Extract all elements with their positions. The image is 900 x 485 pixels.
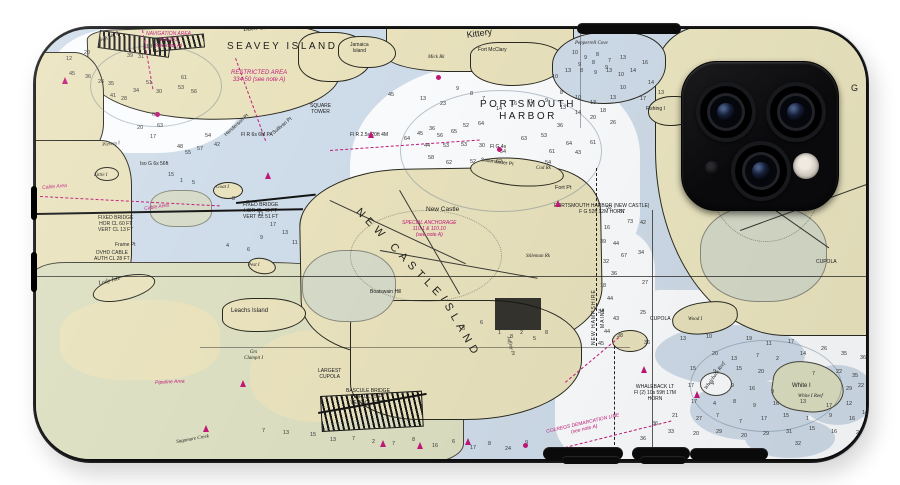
volume-button-upper xyxy=(31,186,37,220)
buoy-mark-icon xyxy=(465,438,471,445)
volume-button-lower xyxy=(31,252,37,292)
camera-lens-top-left xyxy=(696,82,756,142)
camera-module xyxy=(681,61,839,211)
buoy-mark-icon xyxy=(265,172,271,179)
lens-glass xyxy=(752,162,770,180)
buoy-mark-icon xyxy=(380,440,386,447)
lens-glass xyxy=(717,103,735,121)
buoy-mark-icon xyxy=(417,442,423,449)
buoy-mark-icon xyxy=(240,380,246,387)
light-dot-icon xyxy=(155,112,160,117)
camera-lens-bottom xyxy=(731,141,791,201)
buoy-mark-icon xyxy=(62,77,68,84)
bottom-port-cutout-mid-lip xyxy=(640,456,686,464)
light-dot-icon xyxy=(523,443,528,448)
product-photo: { "scene": {"type": "phone-case product … xyxy=(0,0,900,485)
light-dot-icon xyxy=(497,147,502,152)
buoy-mark-icon xyxy=(368,131,374,138)
bottom-port-cutout-left-lip xyxy=(562,456,620,464)
buoy-mark-icon xyxy=(555,200,561,207)
camera-lens-top-right xyxy=(766,82,826,142)
lens-glass xyxy=(787,103,805,121)
flash-led xyxy=(793,153,819,179)
microphone-dot xyxy=(705,161,719,175)
buoy-mark-icon xyxy=(694,391,700,398)
light-dot-icon xyxy=(436,75,441,80)
phone-case: 1220183931453626355134304128535661676320… xyxy=(33,26,869,463)
bottom-port-cutout-right xyxy=(690,448,768,460)
top-edge-button xyxy=(577,23,681,34)
buoy-mark-icon xyxy=(641,366,647,373)
buoy-mark-icon xyxy=(203,425,209,432)
